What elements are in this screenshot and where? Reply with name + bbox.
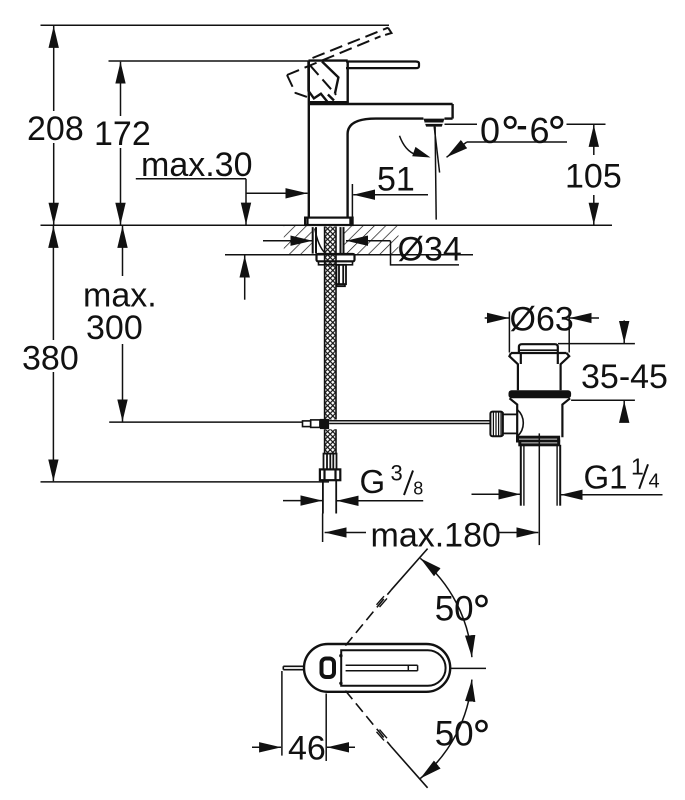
svg-text:1: 1 xyxy=(631,454,644,480)
svg-text:35-45: 35-45 xyxy=(581,358,668,396)
svg-text:380: 380 xyxy=(22,340,79,378)
svg-text:300: 300 xyxy=(86,309,143,347)
svg-text:46: 46 xyxy=(288,730,326,768)
svg-text:4: 4 xyxy=(649,471,660,493)
svg-text:max.180: max.180 xyxy=(371,517,501,555)
svg-text:G1: G1 xyxy=(584,458,628,495)
svg-text:G: G xyxy=(360,463,386,500)
svg-text:105: 105 xyxy=(565,158,622,196)
svg-text:3: 3 xyxy=(391,461,403,486)
svg-text:50: 50 xyxy=(435,590,474,629)
svg-text:8: 8 xyxy=(413,479,423,499)
svg-text:6: 6 xyxy=(530,110,550,151)
svg-text:50: 50 xyxy=(435,715,474,754)
svg-text:Ø34: Ø34 xyxy=(398,231,462,269)
svg-text:0: 0 xyxy=(480,110,500,151)
svg-text:51: 51 xyxy=(377,161,415,199)
svg-text:Ø63: Ø63 xyxy=(510,301,574,339)
svg-text:208: 208 xyxy=(27,110,84,148)
